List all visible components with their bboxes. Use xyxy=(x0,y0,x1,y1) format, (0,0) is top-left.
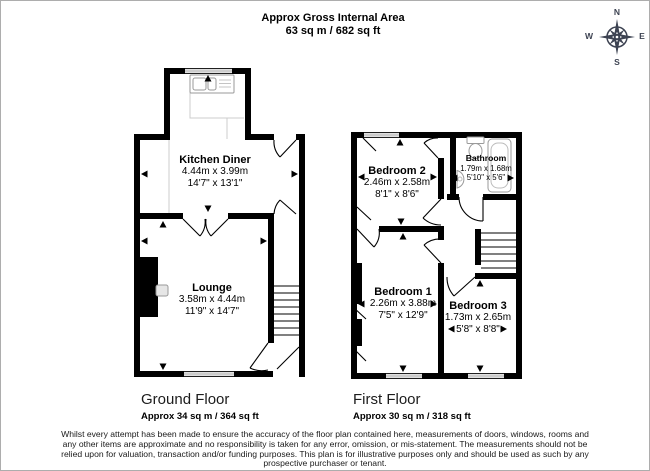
room-imperial-dims: 5'10" x 5'6" xyxy=(460,173,512,183)
room-name: Bedroom 1 xyxy=(370,286,436,298)
door-arc xyxy=(274,200,280,214)
dim-arrow-left-icon xyxy=(141,171,148,178)
door-leaf xyxy=(423,199,441,218)
room-metric-dims: 1.79m x 1.68m xyxy=(460,164,512,174)
floor-area: Approx 30 sq m / 318 sq ft xyxy=(353,411,471,422)
floor-plan-drawing xyxy=(1,1,650,471)
room-label-bedroom-3: Bedroom 3 1.73m x 2.65m 5'8" x 8'8" xyxy=(445,300,511,336)
kitchen-counter xyxy=(169,93,244,213)
dim-arrow-down-icon xyxy=(400,366,407,373)
door-leaf xyxy=(424,245,441,263)
room-imperial-dims: 8'1" x 8'6" xyxy=(364,189,430,201)
door-leaf xyxy=(280,200,296,214)
gross-internal-area-header: Approx Gross Internal Area 63 sq m / 682… xyxy=(261,12,404,38)
door-leaf xyxy=(424,143,438,158)
dim-arrow-up-icon xyxy=(477,280,484,287)
door-arc xyxy=(250,368,268,371)
room-metric-dims: 3.58m x 4.44m xyxy=(179,294,245,306)
room-imperial-dims: 11'9" x 14'7" xyxy=(179,306,245,318)
compass-north-label: N xyxy=(611,7,623,17)
header-line2: 63 sq m / 682 sq ft xyxy=(261,25,404,38)
dim-arrow-right-icon xyxy=(292,171,299,178)
floor-area: Approx 34 sq m / 364 sq ft xyxy=(141,411,259,422)
door-arc xyxy=(200,219,211,236)
compass-rose-icon xyxy=(599,19,635,55)
room-label-bathroom: Bathroom 1.79m x 1.68m 5'10" x 5'6" xyxy=(460,154,512,183)
door-arc xyxy=(424,138,438,143)
window xyxy=(364,132,399,138)
door-leaf xyxy=(250,343,268,368)
room-name: Bathroom xyxy=(460,154,512,164)
door-arc xyxy=(274,140,280,157)
room-label-bedroom-2: Bedroom 2 2.46m x 2.58m 8'1" x 8'6" xyxy=(364,165,430,201)
room-label-kitchen-diner: Kitchen Diner 4.44m x 3.99m 14'7" x 13'1… xyxy=(179,154,251,190)
door-leaf xyxy=(357,229,374,247)
window xyxy=(468,373,504,379)
door-arc xyxy=(459,197,483,221)
room-imperial-dims: 14'7" x 13'1" xyxy=(179,178,251,190)
room-imperial-dims: 7'5" x 12'9" xyxy=(370,310,436,322)
room-label-bedroom-1: Bedroom 1 2.26m x 3.88m 7'5" x 12'9" xyxy=(370,286,436,322)
front-door-opening xyxy=(273,371,299,377)
kitchen-sink xyxy=(190,75,234,93)
fireplace xyxy=(156,285,168,296)
ground-floor-title: Ground Floor Approx 34 sq m / 364 sq ft xyxy=(141,391,259,422)
compass-east-label: E xyxy=(636,31,648,41)
staircase xyxy=(274,286,299,335)
ground-floor-plan xyxy=(134,68,305,377)
compass-south-label: S xyxy=(611,57,623,67)
door-arc xyxy=(447,277,454,296)
room-metric-dims: 2.46m x 2.58m xyxy=(364,177,430,189)
dim-arrow-down-icon xyxy=(160,364,167,371)
room-name: Bedroom 2 xyxy=(364,165,430,177)
disclaimer-text: Whilst every attempt has been made to en… xyxy=(1,430,649,469)
floor-name: Ground Floor xyxy=(141,391,259,408)
dim-arrow-down-icon xyxy=(477,366,484,373)
room-imperial-dims: 5'8" x 8'8" xyxy=(445,324,511,336)
disclaimer-line: prospective purchaser or tenant. xyxy=(1,459,649,469)
dim-arrow-down-icon xyxy=(205,206,212,213)
dim-arrow-left-icon xyxy=(141,238,148,245)
dim-arrow-up-icon xyxy=(160,221,167,228)
window xyxy=(184,371,234,377)
dim-arrow-up-icon xyxy=(397,139,404,146)
compass-west-label: W xyxy=(583,31,595,41)
room-name: Kitchen Diner xyxy=(179,154,251,166)
toilet-cistern xyxy=(467,137,484,144)
room-metric-dims: 2.26m x 3.88m xyxy=(370,298,436,310)
door-leaf xyxy=(277,347,299,369)
room-metric-dims: 1.73m x 2.65m xyxy=(445,312,511,324)
room-name: Bedroom 3 xyxy=(445,300,511,312)
first-floor-title: First Floor Approx 30 sq m / 318 sq ft xyxy=(353,391,471,422)
dim-arrow-down-icon xyxy=(398,219,405,226)
door-arc xyxy=(374,229,379,247)
room-name: Lounge xyxy=(179,282,245,294)
door-arc xyxy=(423,218,441,225)
floor-plan-page: Approx Gross Internal Area 63 sq m / 682… xyxy=(0,0,650,471)
window xyxy=(386,373,422,379)
ground-floor-walls xyxy=(134,68,305,377)
dim-arrow-right-icon xyxy=(261,238,268,245)
room-metric-dims: 4.44m x 3.99m xyxy=(179,166,251,178)
door-leaf xyxy=(454,277,475,296)
dim-arrow-up-icon xyxy=(400,233,407,240)
room-label-lounge: Lounge 3.58m x 4.44m 11'9" x 14'7" xyxy=(179,282,245,318)
header-line1: Approx Gross Internal Area xyxy=(261,12,404,25)
floor-name: First Floor xyxy=(353,391,471,408)
staircase xyxy=(481,233,516,268)
window xyxy=(185,68,232,74)
dim-arrow-right-icon xyxy=(431,174,438,181)
chimney-breast xyxy=(140,257,158,317)
door-leaf xyxy=(280,140,296,157)
